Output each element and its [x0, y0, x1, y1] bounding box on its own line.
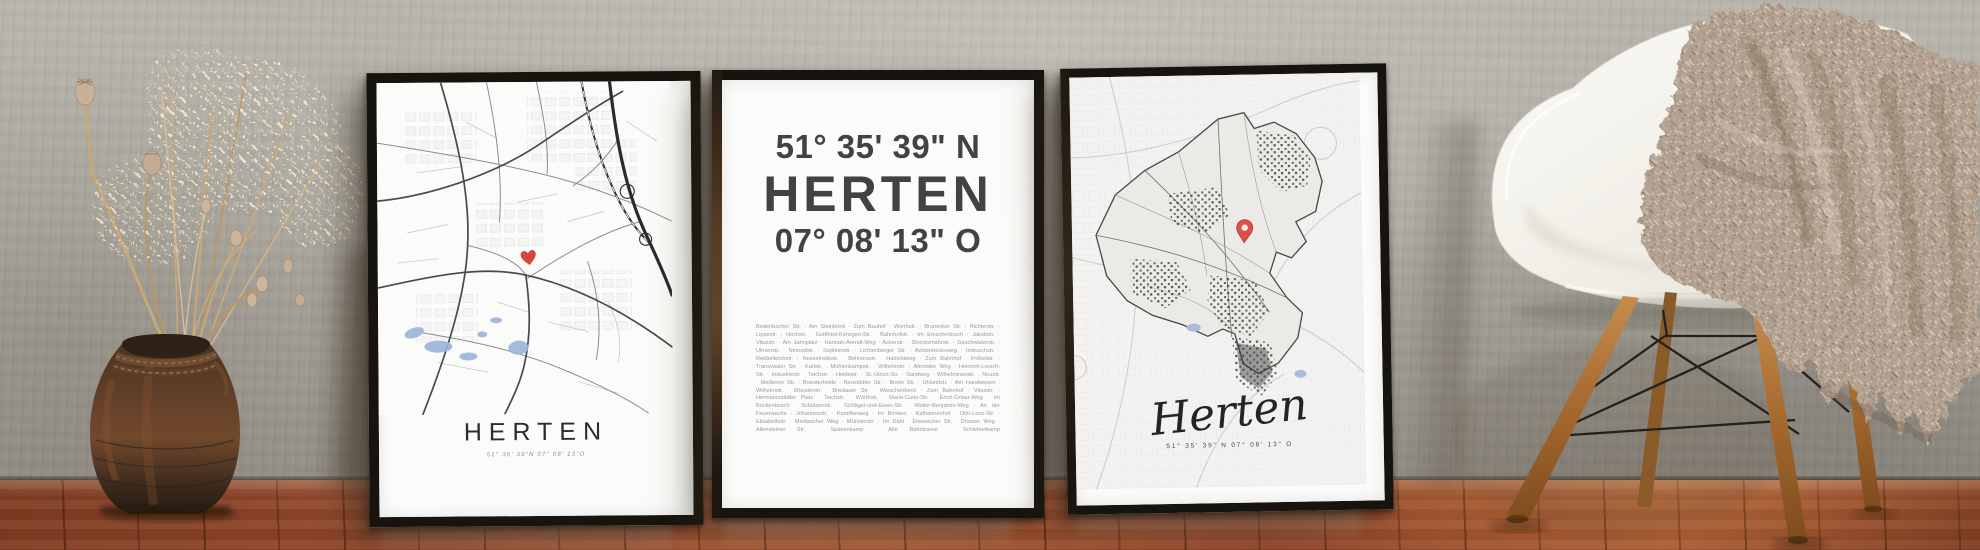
poster-street-map: HERTEN 51° 35' 39"N 07° 08' 13"O [366, 71, 703, 527]
leg-floor-shadow [1491, 520, 1547, 532]
frame-glare [712, 70, 722, 518]
babys-breath [92, 45, 364, 266]
dried-flowers-vase [0, 0, 370, 550]
leg-floor-shadow [1853, 509, 1897, 519]
poster-1-coordinates: 51° 35' 39"N 07° 08' 13"O [379, 451, 693, 459]
poster-1-caption: HERTEN 51° 35' 39"N 07° 08' 13"O [379, 417, 693, 459]
poster-2-street-list: Bodenbacher Str. · Am Steinbrink · Zum B… [756, 324, 1000, 435]
chair-with-blanket [1455, 0, 1980, 550]
poster-2-longitude: 07° 08' 13" O [722, 222, 1034, 260]
poster-street-map-inner: HERTEN 51° 35' 39"N 07° 08' 13"O [376, 81, 693, 517]
poster-1-city-title: HERTEN [379, 417, 693, 448]
poster-2-latitude: 51° 35' 39" N [722, 128, 1034, 166]
poster-3-caption: Herten 51° 35' 39" N 07° 08' 13" O [1075, 384, 1384, 451]
vase-floor-shadow [104, 506, 236, 522]
poster-2-heading: 51° 35' 39" N HERTEN 07° 08' 13" O [722, 128, 1034, 260]
rustic-vase [90, 334, 240, 514]
room-scene: HERTEN 51° 35' 39"N 07° 08' 13"O 51° 35'… [0, 0, 1980, 550]
street-map-art [376, 81, 672, 415]
poster-typography-inner: 51° 35' 39" N HERTEN 07° 08' 13" O Boden… [722, 80, 1034, 508]
leg-floor-shadow [1774, 538, 1826, 550]
chair-wall-shadow [1455, 345, 1785, 535]
poster-typography: 51° 35' 39" N HERTEN 07° 08' 13" O Boden… [712, 70, 1044, 518]
poster-boundary-map: Herten 51° 35' 39" N 07° 08' 13" O [1060, 63, 1394, 515]
poster-2-city-title: HERTEN [722, 166, 1034, 222]
poster-boundary-map-inner: Herten 51° 35' 39" N 07° 08' 13" O [1069, 72, 1384, 505]
